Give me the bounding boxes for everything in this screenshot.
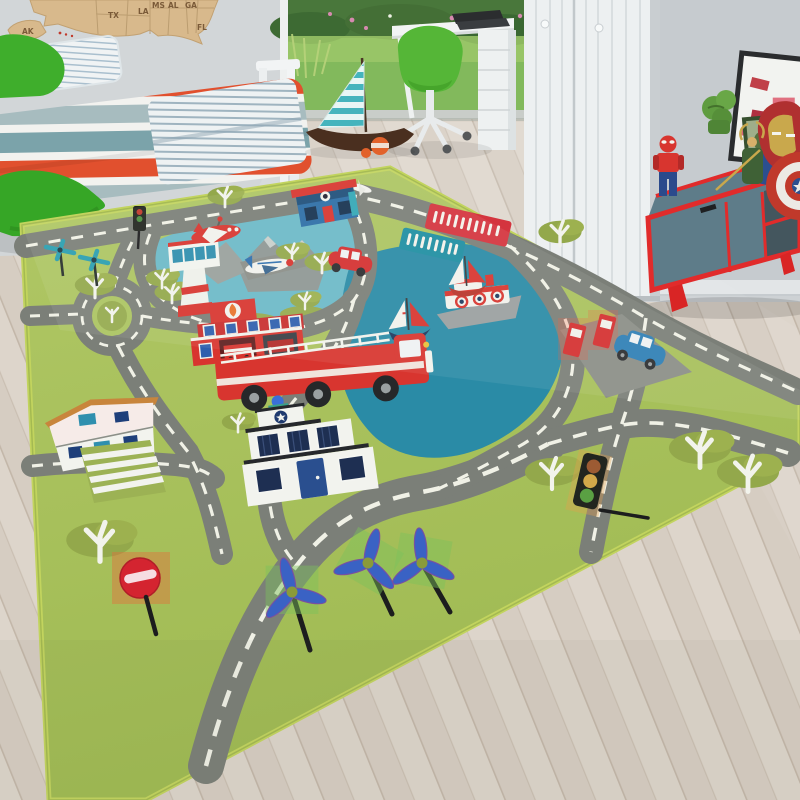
wardrobe-knob	[595, 24, 603, 32]
house-striped-field	[80, 440, 166, 503]
map-state-label: LA	[138, 7, 149, 16]
map-state-label: MS	[152, 1, 165, 10]
map-state-label: AL	[168, 1, 179, 10]
map-state-label: TX	[108, 11, 119, 20]
map-state-label: FL	[197, 23, 207, 32]
map-state-label: GA	[185, 1, 197, 10]
floor-vignette	[0, 640, 800, 800]
map-state-label: AK	[22, 27, 35, 36]
wardrobe-knob	[541, 20, 549, 28]
scene-canvas: AK TX LA MS AL GA FL	[0, 0, 800, 800]
chair-column	[426, 90, 434, 118]
photo-kids-room: AK TX LA MS AL GA FL	[0, 0, 800, 800]
chair-shell	[398, 26, 463, 93]
